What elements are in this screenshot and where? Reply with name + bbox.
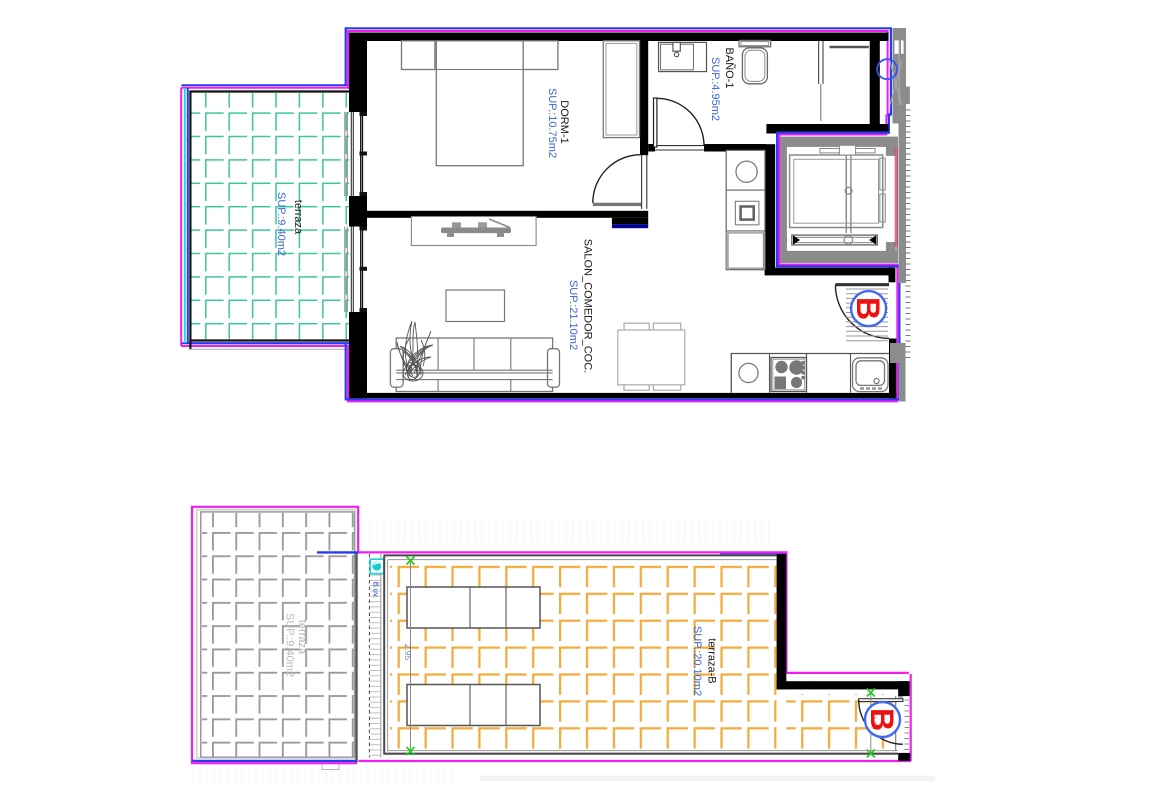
svg-text:terraza: terraza — [296, 620, 308, 655]
svg-text:DORM-1: DORM-1 — [558, 100, 570, 143]
svg-text:SUP.:10.75m2: SUP.:10.75m2 — [546, 88, 558, 158]
svg-text:terraza-B: terraza-B — [706, 638, 718, 683]
svg-text:B.uv.: B.uv. — [372, 582, 381, 599]
svg-text:B: B — [864, 708, 900, 731]
svg-text:SUP.:4.95m2: SUP.:4.95m2 — [709, 57, 721, 121]
svg-text:SUP.:20.10m2: SUP.:20.10m2 — [691, 626, 703, 696]
svg-text:SUP.:21.10m2: SUP.:21.10m2 — [567, 280, 579, 350]
svg-text:B: B — [850, 297, 886, 320]
svg-text:terraza: terraza — [292, 200, 304, 235]
svg-text:SUP.:9.40m2: SUP.:9.40m2 — [284, 613, 296, 677]
svg-text:BAÑO-1: BAÑO-1 — [723, 48, 736, 89]
svg-text:SUP.:9.40m2: SUP.:9.40m2 — [275, 192, 287, 256]
svg-text:SALON_COMEDOR_COC.: SALON_COMEDOR_COC. — [582, 239, 594, 373]
svg-text:2.95: 2.95 — [403, 644, 413, 661]
